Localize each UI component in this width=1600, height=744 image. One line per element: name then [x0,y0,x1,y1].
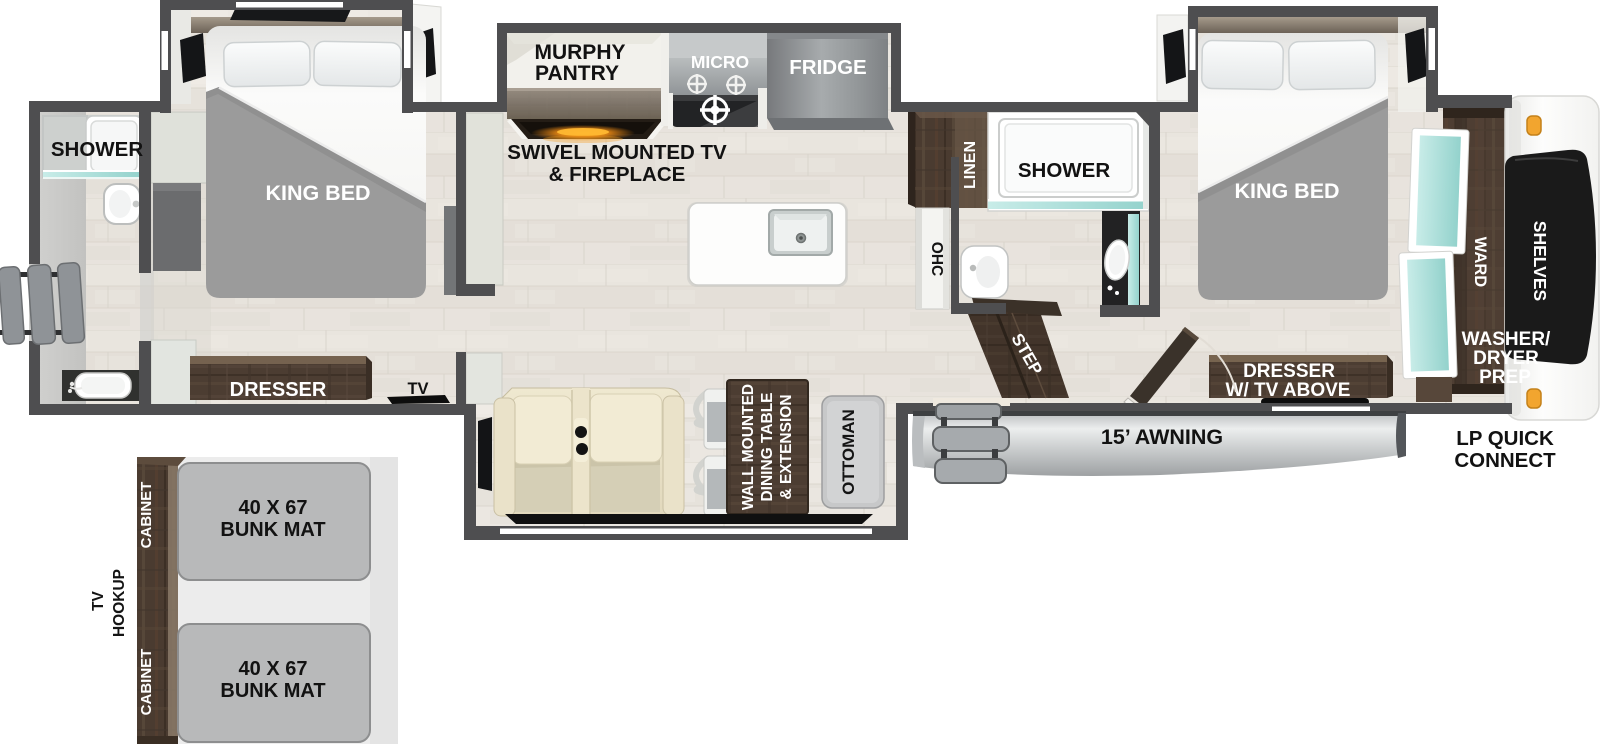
svg-text:& FIREPLACE: & FIREPLACE [549,163,686,186]
svg-text:HOOKUP: HOOKUP [111,569,128,637]
svg-text:LINEN: LINEN [962,141,979,189]
svg-text:OTTOMAN: OTTOMAN [839,409,858,495]
svg-text:MURPHY: MURPHY [534,41,625,64]
svg-text:KING BED: KING BED [1234,179,1339,203]
svg-text:40 X 67: 40 X 67 [239,658,308,680]
svg-text:DRYER: DRYER [1473,348,1539,369]
svg-text:BUNK MAT: BUNK MAT [220,519,325,541]
svg-text:DRESSER: DRESSER [1243,361,1335,382]
svg-text:LP QUICK: LP QUICK [1456,427,1554,450]
svg-text:& EXTENSION: & EXTENSION [778,394,795,499]
svg-text:KING BED: KING BED [265,181,370,205]
svg-text:CABINET: CABINET [138,649,155,716]
svg-text:PANTRY: PANTRY [535,62,619,85]
svg-text:15’ AWNING: 15’ AWNING [1101,425,1223,449]
svg-text:SHELVES: SHELVES [1530,221,1550,301]
svg-text:DINING TABLE: DINING TABLE [759,392,776,501]
svg-text:DRESSER: DRESSER [230,379,327,401]
svg-text:CONNECT: CONNECT [1454,449,1556,472]
svg-text:CABINET: CABINET [138,482,155,549]
svg-text:SWIVEL MOUNTED TV: SWIVEL MOUNTED TV [507,141,727,164]
svg-text:WARD: WARD [1471,237,1489,287]
svg-text:WALL MOUNTED: WALL MOUNTED [740,384,757,510]
svg-text:FRIDGE: FRIDGE [789,56,866,79]
svg-text:SHOWER: SHOWER [51,138,143,161]
svg-text:40 X 67: 40 X 67 [239,497,308,519]
svg-text:TV: TV [90,590,107,610]
svg-text:W/ TV ABOVE: W/ TV ABOVE [1226,380,1351,401]
svg-text:OHC: OHC [928,242,945,276]
svg-text:BUNK MAT: BUNK MAT [220,680,325,702]
svg-text:SHOWER: SHOWER [1018,159,1110,182]
svg-text:TV: TV [407,380,428,398]
svg-text:MICRO: MICRO [691,52,749,72]
svg-text:WASHER/: WASHER/ [1462,329,1551,350]
svg-text:PREP: PREP [1479,367,1531,388]
